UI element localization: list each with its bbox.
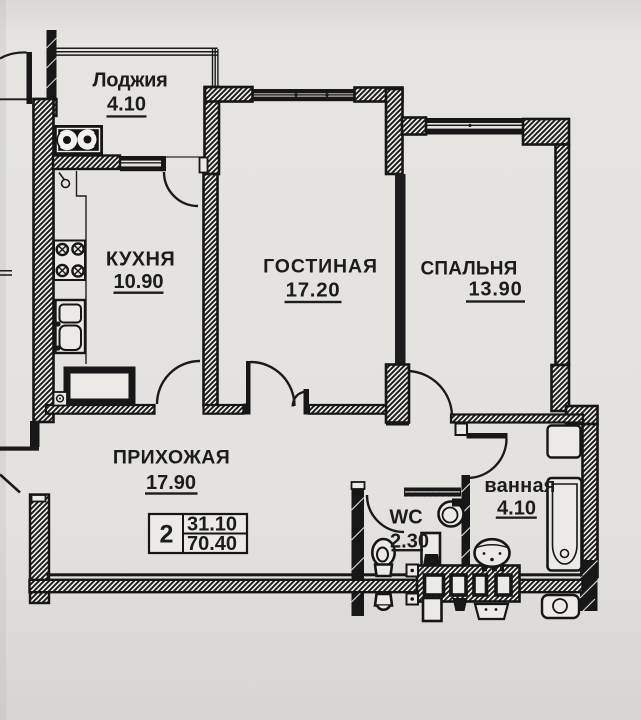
svg-text:WC: WC bbox=[389, 507, 422, 529]
svg-text:2: 2 bbox=[160, 521, 174, 549]
svg-text:17.20: 17.20 bbox=[286, 278, 341, 301]
svg-text:ПРИХОЖАЯ: ПРИХОЖАЯ bbox=[113, 447, 230, 469]
svg-text:4.10: 4.10 bbox=[107, 94, 146, 116]
svg-text:ванная: ванная bbox=[484, 475, 555, 497]
svg-text:4.10: 4.10 bbox=[497, 498, 536, 520]
svg-text:СПАЛЬНЯ: СПАЛЬНЯ bbox=[420, 258, 517, 279]
svg-text:17.90: 17.90 bbox=[146, 472, 196, 494]
svg-text:70.40: 70.40 bbox=[187, 533, 237, 555]
svg-text:10.90: 10.90 bbox=[113, 271, 163, 293]
svg-text:ГОСТИНАЯ: ГОСТИНАЯ bbox=[263, 255, 378, 277]
svg-text:КУХНЯ: КУХНЯ bbox=[106, 249, 175, 271]
svg-text:2.30: 2.30 bbox=[390, 531, 429, 553]
svg-text:13.90: 13.90 bbox=[468, 278, 522, 300]
svg-text:Лоджия: Лоджия bbox=[92, 70, 167, 92]
